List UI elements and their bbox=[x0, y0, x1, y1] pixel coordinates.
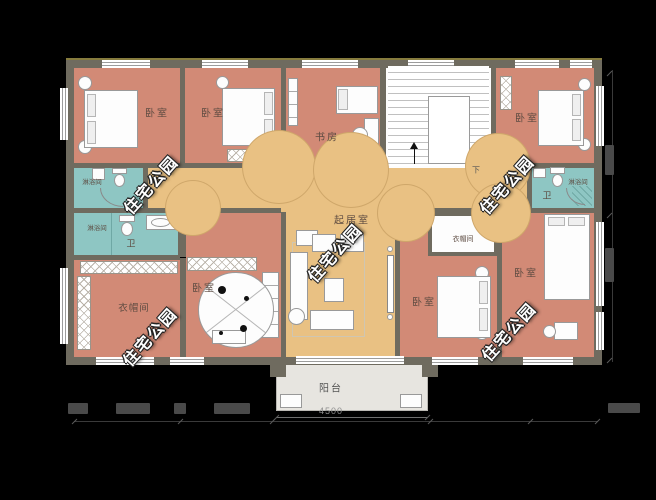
dimension-smudge bbox=[605, 145, 614, 175]
dimension-smudge bbox=[68, 403, 88, 414]
bookshelf bbox=[288, 78, 298, 126]
wardrobe bbox=[187, 257, 257, 271]
room-label-closet-right: 衣帽间 bbox=[453, 234, 474, 244]
toilet-bowl bbox=[552, 174, 563, 187]
dimension-smudge bbox=[605, 248, 614, 282]
window bbox=[523, 357, 573, 365]
room-label-bedroom-bottom-right: 卧室 bbox=[514, 265, 538, 280]
window bbox=[570, 60, 592, 68]
double-bed bbox=[544, 214, 590, 300]
window bbox=[202, 60, 248, 68]
armchair bbox=[288, 308, 305, 325]
dimension-smudge bbox=[214, 403, 250, 414]
room-label-study: 书房 bbox=[315, 129, 339, 144]
nightstand bbox=[78, 76, 92, 90]
wall bbox=[281, 212, 286, 357]
balcony-post-right bbox=[400, 394, 422, 408]
coffee-table bbox=[324, 278, 344, 302]
room-label-shower-upper-left: 淋浴间 bbox=[82, 176, 102, 186]
window bbox=[408, 60, 454, 68]
balcony-post-left bbox=[280, 394, 302, 408]
wardrobe bbox=[77, 276, 91, 350]
window bbox=[102, 60, 150, 68]
door-swing bbox=[165, 180, 221, 236]
dimension-smudge bbox=[608, 403, 640, 413]
toilet-tank bbox=[550, 167, 565, 174]
pillow bbox=[338, 89, 348, 110]
window bbox=[60, 88, 68, 140]
desk bbox=[554, 322, 578, 340]
dimension-tick bbox=[595, 419, 601, 425]
pillow bbox=[87, 94, 96, 117]
decor-dot bbox=[219, 331, 223, 335]
balcony-sliding-door bbox=[296, 356, 404, 364]
stairs-landing bbox=[428, 96, 470, 164]
dimension-smudge bbox=[174, 403, 186, 414]
door-swing bbox=[242, 130, 316, 204]
pillow bbox=[548, 217, 565, 226]
room-label-bedroom-top-right: 卧室 bbox=[515, 110, 539, 125]
room-label-bedroom-mid-left: 卧室 bbox=[192, 280, 216, 295]
room-label-bath-left: 卫 bbox=[126, 237, 135, 250]
dimension-balcony-width: 4500 bbox=[319, 406, 343, 416]
wall bbox=[180, 68, 185, 163]
wardrobe bbox=[500, 76, 512, 110]
tv-mount bbox=[387, 246, 393, 252]
pillow bbox=[264, 92, 273, 115]
sofa bbox=[310, 310, 354, 330]
wall bbox=[180, 258, 186, 357]
pillow bbox=[572, 94, 581, 116]
decor-dot bbox=[240, 325, 247, 332]
pillow bbox=[87, 121, 96, 144]
floor-plan: 下 bbox=[0, 0, 656, 500]
toilet-bowl bbox=[114, 174, 125, 187]
decor-dot bbox=[218, 286, 226, 294]
dimension-line-bottom bbox=[74, 421, 598, 422]
wardrobe bbox=[80, 261, 178, 274]
pillow bbox=[568, 217, 585, 226]
window bbox=[60, 268, 68, 344]
window bbox=[515, 60, 559, 68]
dimension-line-right bbox=[612, 70, 613, 362]
room-label-bedroom-mid-right: 卧室 bbox=[412, 294, 436, 309]
dimension-line-balcony bbox=[276, 417, 428, 418]
pillow bbox=[479, 308, 488, 331]
wall bbox=[74, 255, 180, 260]
shower-divider bbox=[111, 213, 112, 255]
dimension-smudge bbox=[116, 403, 150, 414]
window bbox=[170, 357, 204, 365]
room-label-bath-right-shower: 淋浴间 bbox=[568, 176, 588, 186]
window bbox=[432, 357, 478, 365]
stairs-down-label: 下 bbox=[472, 165, 480, 176]
toilet-bowl bbox=[121, 222, 133, 236]
pillow bbox=[572, 119, 581, 141]
tv-mount bbox=[387, 314, 393, 320]
window bbox=[596, 86, 604, 146]
room-label-closet-left: 衣帽间 bbox=[118, 300, 150, 314]
room-label-bedroom-top-left: 卧室 bbox=[145, 105, 169, 120]
door-swing bbox=[377, 184, 435, 242]
window bbox=[596, 312, 604, 350]
room-label-bath-left-shower: 淋浴间 bbox=[87, 222, 107, 232]
room-label-bath-right: 卫 bbox=[542, 189, 551, 202]
desk-chair bbox=[543, 325, 556, 338]
tv bbox=[387, 255, 394, 313]
window bbox=[302, 60, 358, 68]
room-label-bedroom-top-mid: 卧室 bbox=[201, 105, 225, 120]
bed-bench bbox=[212, 330, 246, 344]
room-label-balcony: 阳台 bbox=[319, 380, 343, 395]
dimension-tick bbox=[425, 415, 431, 421]
stairs-arrow-stem bbox=[414, 149, 415, 164]
stairs-arrow-icon bbox=[410, 142, 418, 149]
pillow bbox=[479, 281, 488, 304]
window bbox=[596, 222, 604, 306]
decor-dot bbox=[244, 296, 249, 301]
